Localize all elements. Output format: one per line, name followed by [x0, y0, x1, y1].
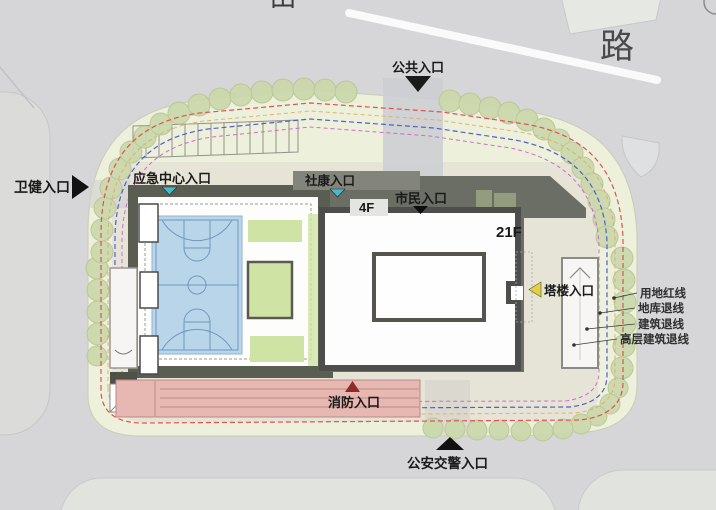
fire-entrance-label: 消防入口 [328, 395, 380, 410]
road-name-partial-char: 田 [270, 0, 296, 12]
west-ramp [110, 268, 137, 368]
tower-entrance-opening [511, 286, 523, 300]
green-mat-bordered [248, 262, 292, 318]
green-mat [248, 220, 302, 242]
emergency-entrance-label: 应急中心入口 [133, 171, 211, 186]
basketball-court [152, 216, 242, 354]
block-south [60, 478, 556, 510]
public-entrance-driveway [383, 78, 443, 186]
legend-item-highrise-setback: 高层建筑退线 [620, 332, 689, 346]
legend-item-basement-setback: 地库退线 [638, 301, 684, 315]
block-west [0, 92, 50, 435]
tower-entrance-label: 塔楼入口 [544, 283, 594, 298]
clinic-entrance-label: 社康入口 [304, 173, 355, 188]
legend-item-red-line: 用地红线 [639, 286, 686, 300]
site-plan: 路 田 [0, 0, 716, 510]
tower-core [374, 254, 484, 320]
legend-item-building-setback: 建筑退线 [638, 317, 684, 331]
health-entrance-label: 卫健入口 [14, 179, 70, 195]
tower-floor-label: 21F [496, 224, 522, 241]
green-mat [250, 336, 304, 362]
stair-core [140, 272, 158, 308]
green-strip [308, 214, 318, 366]
police-entrance-label: 公安交警入口 [407, 455, 488, 471]
road-name-label: 路 [600, 28, 634, 66]
podium-floor-label: 4F [359, 200, 374, 215]
public-entrance-label: 公共入口 [392, 60, 444, 75]
site-plan-drawing: 路 田 [0, 0, 716, 510]
stair-core [139, 204, 158, 242]
citizen-entrance-label: 市民入口 [395, 191, 447, 206]
stair-core [140, 336, 158, 374]
